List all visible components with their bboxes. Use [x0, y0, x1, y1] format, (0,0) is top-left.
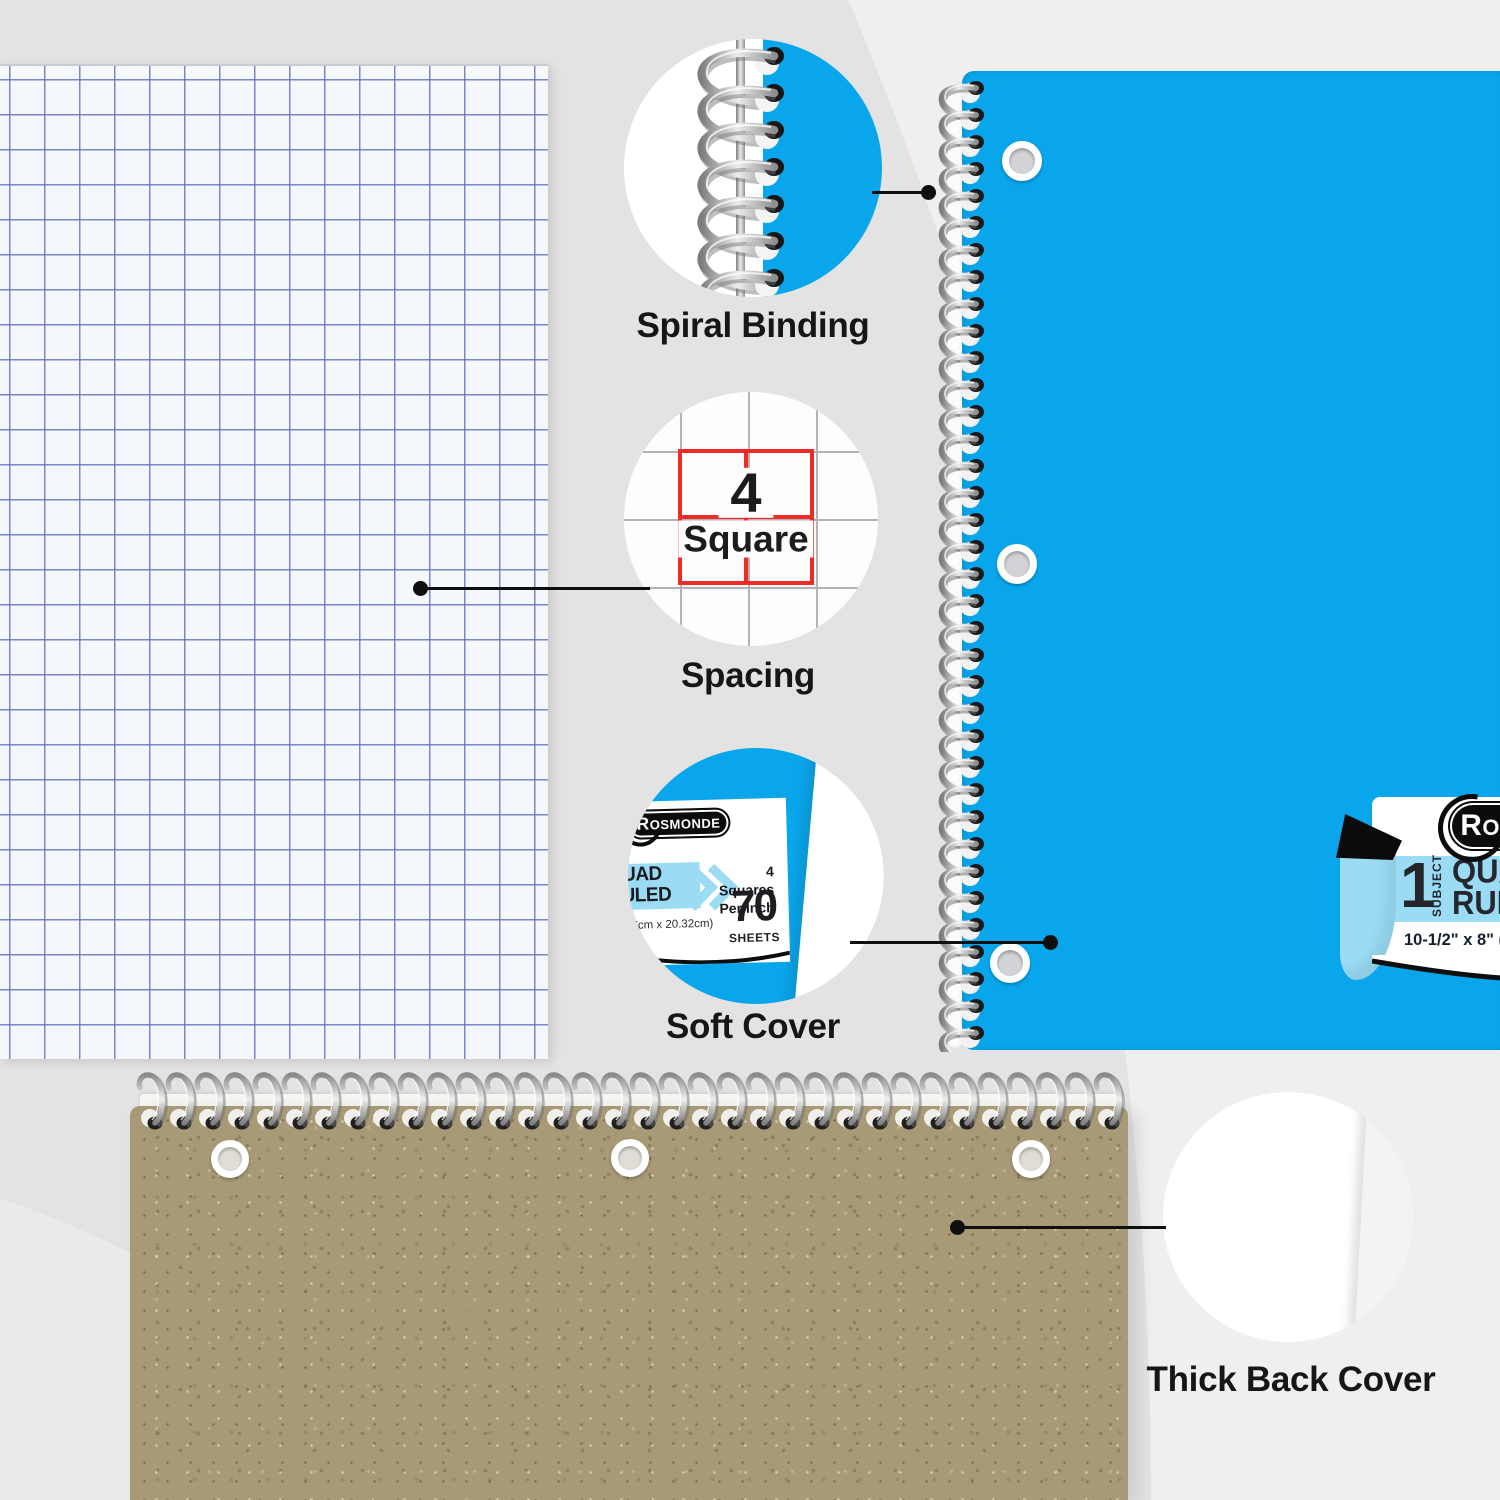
closeup-page-edge [1354, 1092, 1413, 1342]
callout-label-spacing: Spacing [538, 656, 958, 696]
leader-dot-spiral-binding [921, 185, 936, 200]
mini-ruling-text: QUAD RULED [628, 864, 672, 908]
spiral-binding-top-icon [134, 1072, 1126, 1138]
leader-dot-soft-cover [1043, 935, 1058, 950]
product-infographic: 1 SUBJECT QUAD RULED 10-1/2" x 8" (26.67… [0, 0, 1500, 1500]
punch-hole [1012, 1140, 1050, 1178]
sheets-word: SHEETS [727, 930, 781, 945]
label-bottom-curve [1372, 955, 1500, 989]
ruling-text: QUAD RULED [1452, 856, 1500, 920]
subject-word: SUBJECT [1430, 859, 1444, 917]
callout-label-spiral-binding: Spiral Binding [543, 306, 963, 346]
square-word: Square [678, 520, 813, 557]
mini-ruling-line2: RULED [628, 885, 672, 908]
quad-ruled-paper-sheet [0, 64, 548, 1059]
cover-label: 1 SUBJECT QUAD RULED 10-1/2" x 8" (26.67… [1336, 792, 1500, 1004]
leader-line-soft-cover [850, 941, 1052, 944]
punch-hole [611, 1139, 649, 1177]
brand-logo: ROSMONDE [1450, 803, 1500, 849]
sheets-count: 70 [728, 884, 779, 929]
brand-logo: ROSMONDE [628, 809, 729, 838]
leader-line-thick-back-cover [958, 1226, 1166, 1229]
mini-size-text: 67cm x 20.32cm) [628, 918, 713, 932]
spiral-closeup-coil-icon [624, 39, 882, 297]
mini-label-bottom-curve [628, 944, 790, 966]
square-number: 4 [718, 467, 773, 517]
leader-line-spacing [420, 587, 650, 590]
spiral-binding-closeup [624, 39, 882, 297]
size-text: 10-1/2" x 8" (26.67cm x 20.32cm) [1404, 931, 1500, 950]
callout-label-soft-cover: Soft Cover [543, 1007, 963, 1047]
mini-label-card: ROSMONDE QUAD RULED 4 Squares Per Inch 6… [628, 798, 790, 966]
punch-hole [1002, 141, 1042, 181]
thick-back-cover-closeup [1163, 1092, 1413, 1342]
punch-hole [211, 1140, 249, 1178]
spacing-closeup: 4 Square [624, 392, 878, 646]
closeup-page-edge [794, 748, 884, 1004]
soft-cover-closeup: ROSMONDE QUAD RULED 4 Squares Per Inch 6… [628, 748, 884, 1004]
ruling-line2: RULED [1452, 887, 1500, 919]
four-square-outline: 4 Square [678, 449, 814, 585]
punch-hole [990, 943, 1030, 983]
spiral-binding-left-icon [924, 76, 994, 1052]
punch-hole [997, 544, 1037, 584]
callout-label-thick-back-cover: Thick Back Cover [1081, 1360, 1500, 1400]
